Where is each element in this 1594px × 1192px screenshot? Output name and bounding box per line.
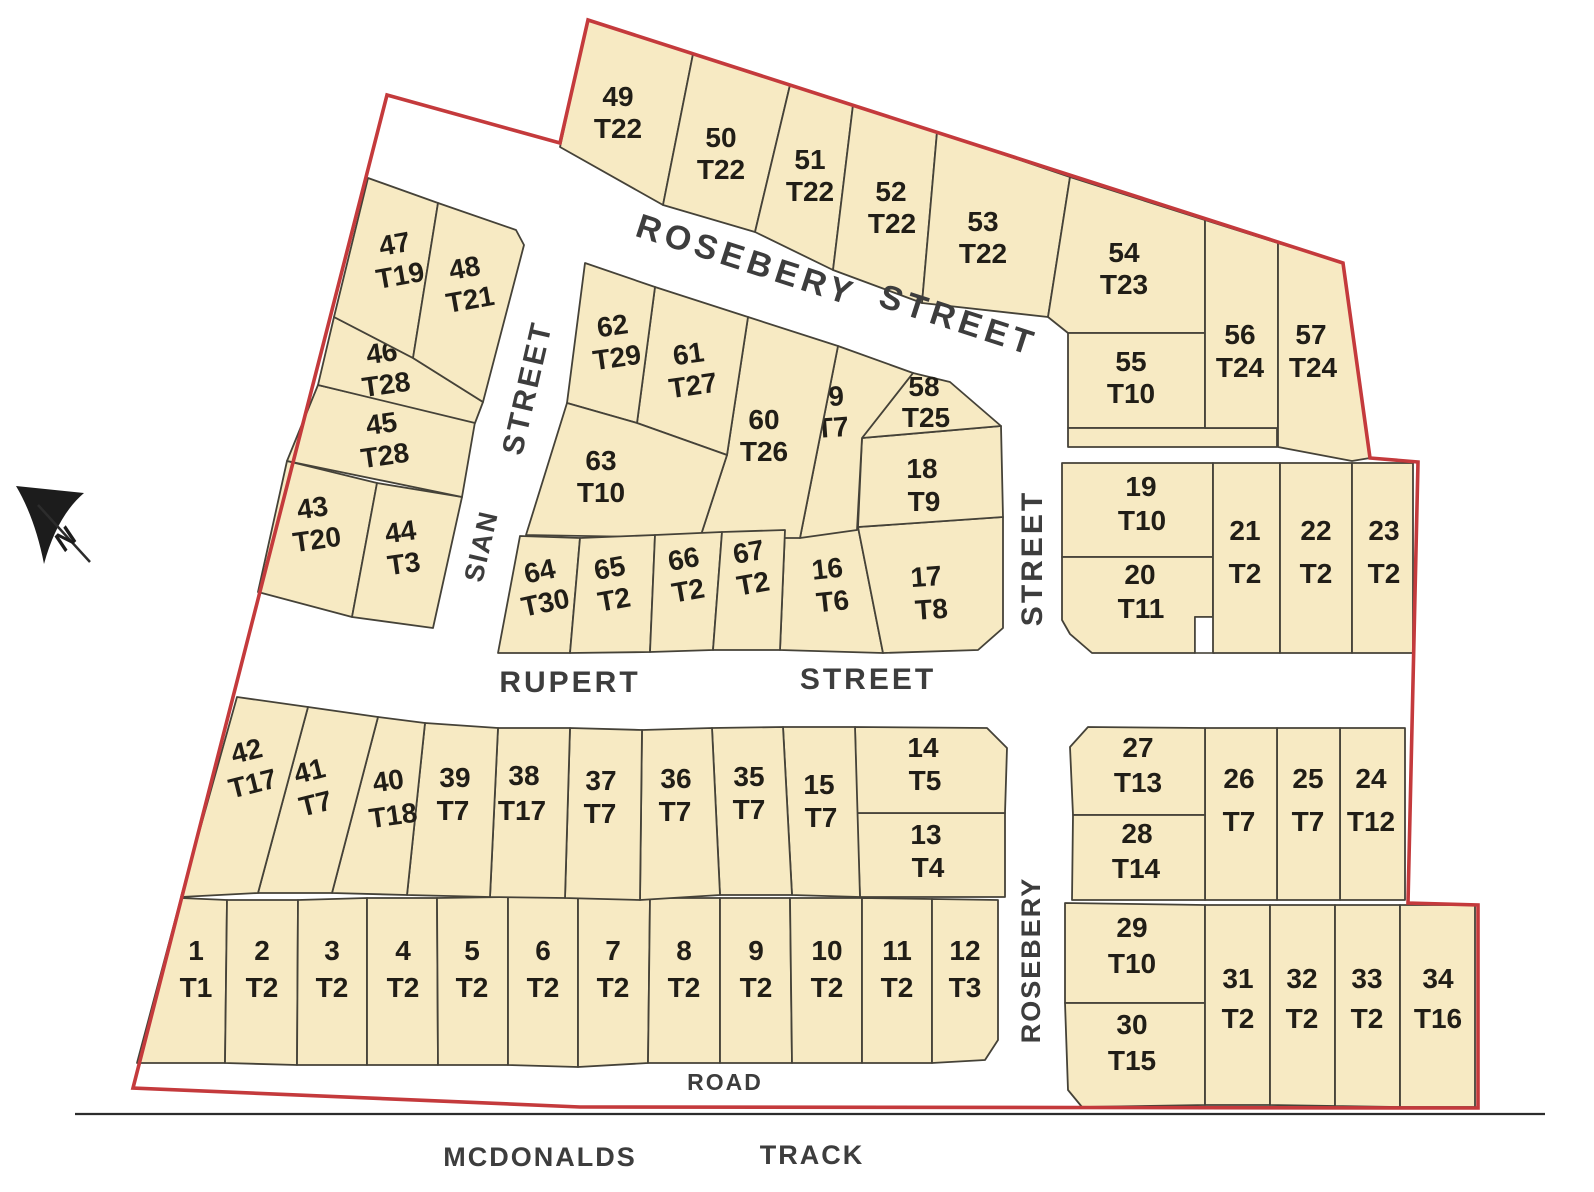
svg-text:51: 51 (794, 144, 825, 175)
svg-text:53: 53 (967, 206, 998, 237)
svg-text:T2: T2 (881, 972, 914, 1003)
svg-text:45: 45 (364, 406, 399, 441)
lot-9: 9T2 (720, 898, 792, 1063)
svg-text:T2: T2 (246, 972, 279, 1003)
svg-text:15: 15 (803, 769, 834, 800)
svg-text:31: 31 (1222, 963, 1253, 994)
lot-36: 36T7 (640, 728, 720, 900)
lot-4: 4T2 (367, 898, 438, 1065)
lot-55: 55T10 (1068, 333, 1205, 428)
svg-text:40: 40 (371, 763, 406, 798)
lot-35: 35T7 (712, 727, 792, 895)
lot-27: 27T13 (1070, 727, 1205, 815)
street-label-rupert: RUPERT (499, 666, 640, 699)
lot-3: 3T2 (297, 898, 367, 1065)
svg-text:11: 11 (882, 935, 912, 966)
svg-text:35: 35 (733, 761, 764, 792)
svg-text:T2: T2 (595, 581, 633, 617)
svg-text:66: 66 (666, 541, 702, 577)
svg-text:T25: T25 (902, 402, 950, 433)
lot-32: 32T2 (1270, 905, 1335, 1106)
lot-7: 7T2 (578, 897, 650, 1067)
svg-text:T26: T26 (740, 436, 788, 467)
svg-text:T2: T2 (811, 972, 844, 1003)
svg-text:1: 1 (188, 935, 204, 966)
svg-text:18: 18 (906, 453, 937, 484)
svg-text:56: 56 (1224, 319, 1255, 350)
svg-text:21: 21 (1229, 515, 1260, 546)
lot-14: 14T5 (855, 727, 1007, 813)
lot-1: 1T1 (137, 898, 227, 1063)
lot-26: 26T7 (1205, 728, 1277, 900)
svg-text:44: 44 (383, 514, 419, 549)
svg-text:T10: T10 (577, 477, 625, 508)
lot-5: 5T2 (437, 897, 508, 1065)
lot-18: 18T9 (858, 426, 1003, 527)
svg-text:26: 26 (1223, 763, 1254, 794)
lot-66: 66T2 (650, 532, 722, 652)
street-label-sian-street: STREET (496, 318, 559, 458)
svg-text:43: 43 (295, 490, 330, 525)
svg-text:T9: T9 (908, 486, 941, 517)
svg-text:50: 50 (705, 122, 736, 153)
lot-64: 64T30 (498, 536, 580, 653)
lot-20: 20T11 (1062, 557, 1213, 653)
lot-67: 67T2 (713, 530, 785, 650)
lot-65: 65T2 (570, 535, 655, 653)
svg-text:T10: T10 (1107, 378, 1155, 409)
svg-text:14: 14 (907, 732, 939, 763)
svg-text:49: 49 (602, 81, 633, 112)
svg-text:T17: T17 (498, 795, 546, 826)
svg-text:T1: T1 (180, 972, 213, 1003)
svg-text:22: 22 (1300, 515, 1331, 546)
street-label-rupert-street: STREET (800, 663, 936, 696)
lot-15: 15T7 (783, 727, 860, 897)
svg-text:T15: T15 (1108, 1045, 1156, 1076)
lot-11: 11T2 (862, 898, 932, 1063)
svg-text:T7: T7 (437, 795, 470, 826)
svg-text:T2: T2 (1368, 558, 1401, 589)
lot-38: 38T17 (490, 728, 570, 898)
svg-text:2: 2 (254, 935, 270, 966)
lot-17: 17T8 (858, 517, 1003, 653)
lot-25: 25T7 (1277, 728, 1340, 900)
street-label-mcdonalds: MCDONALDS (443, 1142, 637, 1172)
svg-text:28: 28 (1121, 818, 1152, 849)
svg-text:32: 32 (1286, 963, 1317, 994)
svg-text:T2: T2 (597, 972, 630, 1003)
svg-text:T2: T2 (1300, 558, 1333, 589)
svg-text:T10: T10 (1108, 948, 1156, 979)
street-label-rosebery-lower: ROSEBERY (1016, 877, 1046, 1044)
street-label-sian: SIAN (458, 507, 504, 584)
svg-text:48: 48 (447, 250, 483, 286)
lot-56: 56T24 (1205, 220, 1278, 428)
svg-text:T2: T2 (1229, 558, 1262, 589)
north-arrow-wedge (16, 486, 84, 564)
svg-text:T10: T10 (1118, 505, 1166, 536)
svg-text:T2: T2 (527, 972, 560, 1003)
svg-text:5: 5 (464, 935, 480, 966)
svg-text:27: 27 (1122, 732, 1153, 763)
lot-28: 28T14 (1072, 815, 1205, 900)
svg-text:67: 67 (731, 534, 767, 570)
lot-31: 31T2 (1205, 905, 1270, 1105)
svg-text:T4: T4 (912, 852, 945, 883)
svg-text:34: 34 (1422, 963, 1454, 994)
svg-text:20: 20 (1124, 559, 1155, 590)
svg-text:9: 9 (748, 935, 764, 966)
lot-23: 23T2 (1352, 463, 1413, 653)
svg-text:4: 4 (395, 935, 411, 966)
svg-text:T7: T7 (805, 802, 838, 833)
lot-22: 22T2 (1280, 463, 1352, 653)
svg-text:T5: T5 (909, 765, 942, 796)
lot-12: 12T3 (932, 899, 998, 1063)
svg-text:T6: T6 (815, 584, 851, 618)
svg-text:T22: T22 (868, 208, 916, 239)
svg-text:T24: T24 (1289, 352, 1338, 383)
svg-text:T22: T22 (959, 238, 1007, 269)
svg-text:13: 13 (910, 819, 941, 850)
svg-text:T7: T7 (1223, 806, 1256, 837)
svg-text:36: 36 (660, 763, 691, 794)
svg-text:T13: T13 (1114, 767, 1162, 798)
svg-text:24: 24 (1355, 763, 1387, 794)
svg-text:23: 23 (1368, 515, 1399, 546)
svg-text:65: 65 (592, 550, 628, 586)
lot-21: 21T2 (1213, 463, 1280, 653)
svg-text:60: 60 (748, 404, 779, 435)
svg-text:T3: T3 (386, 546, 423, 581)
svg-text:58: 58 (908, 371, 939, 402)
svg-text:T7: T7 (733, 794, 766, 825)
svg-text:6: 6 (535, 935, 551, 966)
street-label-road: ROAD (687, 1069, 763, 1095)
lot-53: 53T22 (922, 132, 1070, 317)
lot-19: 19T10 (1062, 463, 1213, 557)
svg-text:61: 61 (671, 336, 706, 371)
svg-text:57: 57 (1295, 319, 1326, 350)
subdivision-plan-map: 1T1 2T2 3T2 4T2 5T2 6T2 7T2 8T2 9T2 10T2… (0, 0, 1594, 1192)
svg-text:T7: T7 (584, 798, 617, 829)
lot-13: 13T4 (857, 813, 1005, 897)
street-label-track: TRACK (760, 1140, 865, 1170)
svg-text:62: 62 (595, 308, 630, 343)
svg-text:39: 39 (439, 762, 470, 793)
svg-text:T24: T24 (1216, 352, 1265, 383)
svg-text:10: 10 (811, 935, 842, 966)
lot-33: 33T2 (1335, 905, 1400, 1107)
svg-text:19: 19 (1125, 471, 1156, 502)
svg-text:T2: T2 (668, 972, 701, 1003)
svg-text:T2: T2 (316, 972, 349, 1003)
svg-text:T22: T22 (786, 176, 834, 207)
svg-text:T2: T2 (669, 572, 707, 608)
lot-10: 10T2 (790, 898, 862, 1063)
lot-2: 2T2 (225, 900, 298, 1065)
svg-text:25: 25 (1292, 763, 1323, 794)
svg-text:T14: T14 (1112, 853, 1161, 884)
svg-text:52: 52 (875, 176, 906, 207)
svg-text:54: 54 (1108, 237, 1140, 268)
svg-text:12: 12 (949, 935, 980, 966)
access-strip (1068, 428, 1277, 447)
svg-text:T16: T16 (1414, 1003, 1462, 1034)
svg-text:T23: T23 (1100, 269, 1148, 300)
svg-text:T2: T2 (1351, 1003, 1384, 1034)
lot-34: 34T16 (1400, 905, 1475, 1107)
street-label-vertical-street: STREET (1016, 490, 1049, 626)
svg-text:7: 7 (605, 935, 621, 966)
svg-text:8: 8 (676, 935, 692, 966)
lot-54: 54T23 (1048, 177, 1205, 333)
svg-text:T7: T7 (1292, 806, 1325, 837)
svg-text:33: 33 (1351, 963, 1382, 994)
lot-8: 8T2 (648, 898, 720, 1063)
svg-text:T2: T2 (387, 972, 420, 1003)
svg-text:37: 37 (585, 765, 616, 796)
lot-24: 24T12 (1340, 728, 1405, 900)
lot-37: 37T7 (565, 728, 642, 900)
svg-text:T22: T22 (697, 154, 745, 185)
svg-text:T3: T3 (949, 972, 982, 1003)
svg-text:47: 47 (377, 226, 413, 262)
lot-30: 30T15 (1065, 1003, 1205, 1107)
svg-text:T2: T2 (740, 972, 773, 1003)
lot-20-notch (1195, 617, 1214, 653)
svg-text:30: 30 (1116, 1009, 1147, 1040)
lot-29: 29T10 (1065, 903, 1205, 1003)
svg-text:29: 29 (1116, 912, 1147, 943)
svg-text:T12: T12 (1347, 806, 1395, 837)
svg-text:38: 38 (508, 760, 539, 791)
svg-text:T2: T2 (734, 565, 772, 601)
svg-text:63: 63 (585, 445, 616, 476)
svg-text:T11: T11 (1118, 593, 1165, 624)
svg-text:T2: T2 (456, 972, 489, 1003)
svg-text:55: 55 (1115, 346, 1146, 377)
svg-text:T7: T7 (659, 796, 692, 827)
svg-text:16: 16 (810, 552, 844, 586)
svg-text:T8: T8 (914, 593, 949, 626)
svg-text:T2: T2 (1286, 1003, 1319, 1034)
svg-text:T22: T22 (594, 113, 642, 144)
svg-text:T2: T2 (1222, 1003, 1255, 1034)
north-arrow: N (16, 486, 90, 564)
lot-6: 6T2 (508, 897, 578, 1067)
svg-text:3: 3 (324, 935, 340, 966)
subdivision-plan-page: 1T1 2T2 3T2 4T2 5T2 6T2 7T2 8T2 9T2 10T2… (0, 0, 1594, 1192)
svg-text:17: 17 (910, 560, 943, 593)
